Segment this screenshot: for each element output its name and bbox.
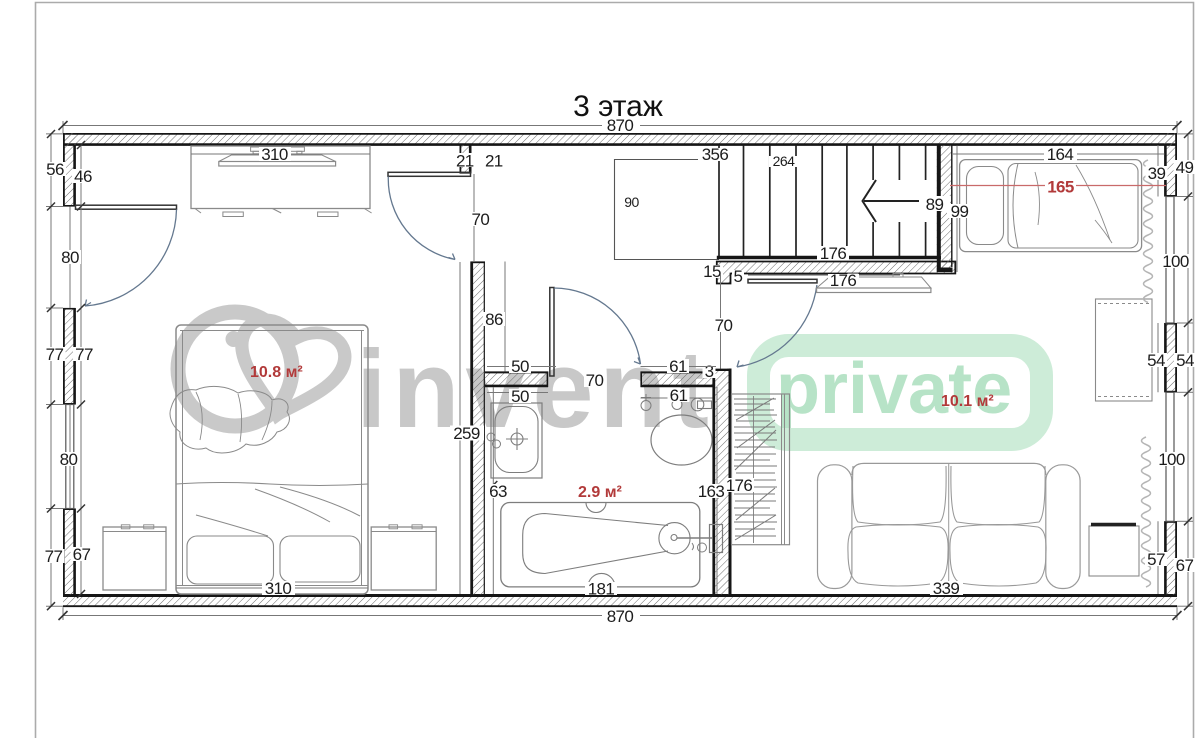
svg-text:870: 870 bbox=[607, 116, 634, 135]
svg-text:310: 310 bbox=[261, 145, 288, 164]
svg-text:67: 67 bbox=[1176, 556, 1194, 575]
svg-text:10.8 м²: 10.8 м² bbox=[250, 364, 303, 381]
svg-text:310: 310 bbox=[265, 579, 292, 598]
svg-text:private: private bbox=[776, 349, 1012, 429]
svg-text:67: 67 bbox=[73, 545, 91, 564]
svg-text:339: 339 bbox=[933, 579, 960, 598]
svg-text:165: 165 bbox=[1047, 178, 1074, 197]
svg-text:77: 77 bbox=[46, 345, 64, 364]
svg-text:70: 70 bbox=[472, 210, 490, 229]
svg-text:57: 57 bbox=[1147, 550, 1165, 569]
svg-text:77: 77 bbox=[75, 345, 93, 364]
svg-text:356: 356 bbox=[702, 145, 729, 164]
svg-text:39: 39 bbox=[1148, 164, 1166, 183]
svg-text:90: 90 bbox=[624, 194, 639, 210]
svg-text:5: 5 bbox=[733, 267, 742, 286]
svg-text:70: 70 bbox=[586, 371, 604, 390]
svg-text:21: 21 bbox=[456, 152, 474, 171]
svg-text:15: 15 bbox=[703, 262, 721, 281]
svg-text:77: 77 bbox=[45, 547, 63, 566]
svg-text:56: 56 bbox=[46, 160, 64, 179]
svg-text:61: 61 bbox=[670, 386, 688, 405]
svg-text:50: 50 bbox=[511, 357, 529, 376]
svg-text:80: 80 bbox=[60, 450, 78, 469]
svg-text:89: 89 bbox=[926, 195, 944, 214]
svg-text:10.1 м²: 10.1 м² bbox=[941, 393, 994, 410]
svg-text:63: 63 bbox=[489, 482, 507, 501]
svg-text:61: 61 bbox=[669, 357, 687, 376]
svg-text:164: 164 bbox=[1047, 145, 1074, 164]
svg-text:163: 163 bbox=[698, 482, 725, 501]
svg-text:86: 86 bbox=[485, 310, 503, 329]
svg-text:80: 80 bbox=[61, 248, 79, 267]
svg-text:21: 21 bbox=[485, 152, 503, 171]
svg-text:176: 176 bbox=[820, 244, 847, 263]
svg-text:870: 870 bbox=[607, 607, 634, 626]
svg-text:100: 100 bbox=[1158, 450, 1185, 469]
svg-text:176: 176 bbox=[830, 271, 857, 290]
svg-text:2.9 м²: 2.9 м² bbox=[578, 484, 622, 501]
svg-text:99: 99 bbox=[951, 202, 969, 221]
svg-text:49: 49 bbox=[1176, 158, 1194, 177]
svg-text:264: 264 bbox=[773, 153, 796, 169]
svg-text:invent: invent bbox=[356, 328, 715, 451]
svg-text:259: 259 bbox=[453, 424, 480, 443]
svg-text:46: 46 bbox=[74, 167, 92, 186]
svg-text:100: 100 bbox=[1162, 252, 1189, 271]
svg-text:54: 54 bbox=[1147, 351, 1165, 370]
svg-text:181: 181 bbox=[588, 580, 615, 599]
svg-text:70: 70 bbox=[715, 316, 733, 335]
svg-text:50: 50 bbox=[511, 387, 529, 406]
svg-text:3: 3 bbox=[705, 362, 714, 381]
svg-text:54: 54 bbox=[1176, 351, 1194, 370]
svg-text:176: 176 bbox=[726, 476, 753, 495]
